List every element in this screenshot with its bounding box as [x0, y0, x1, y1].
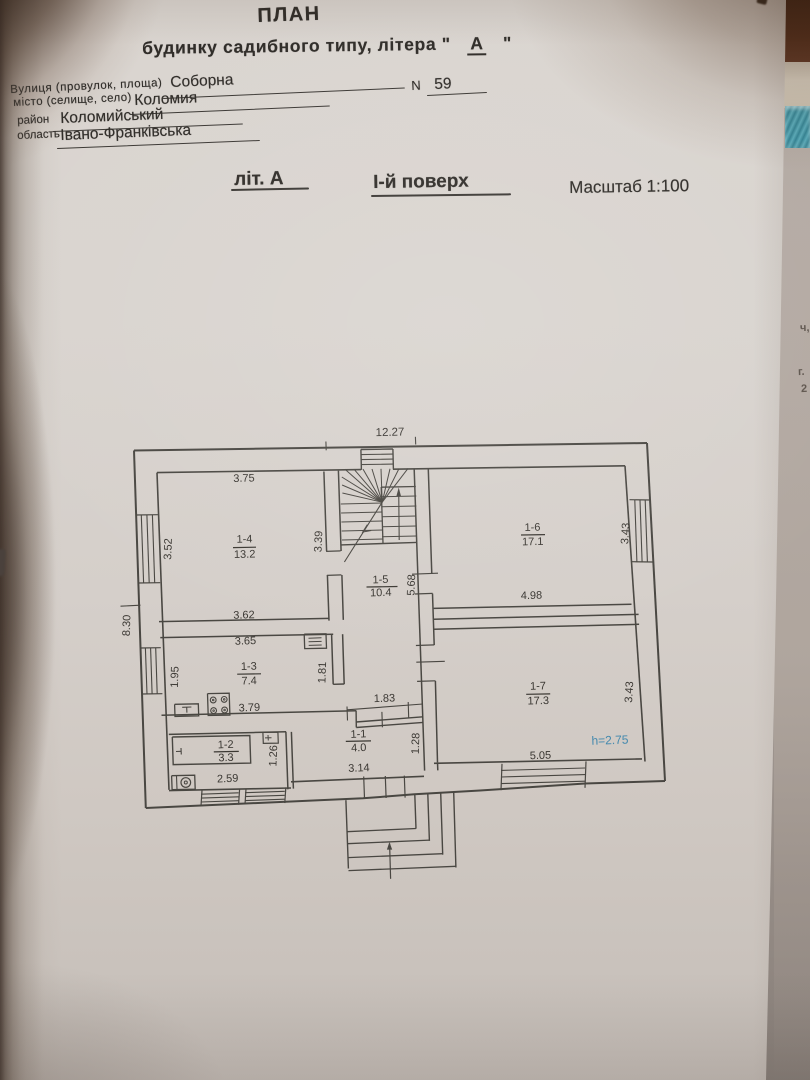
svg-text:3.65: 3.65: [235, 635, 257, 648]
svg-text:12.27: 12.27: [375, 427, 404, 440]
svg-text:1-7: 1-7: [530, 680, 546, 692]
svg-text:3.79: 3.79: [238, 702, 260, 715]
svg-text:1.28: 1.28: [410, 733, 423, 755]
svg-text:5.05: 5.05: [530, 750, 552, 763]
svg-text:1-6: 1-6: [524, 522, 540, 534]
svg-text:1.81: 1.81: [316, 662, 329, 684]
svg-text:17.3: 17.3: [527, 695, 549, 708]
svg-text:17.1: 17.1: [522, 536, 544, 548]
svg-text:4.0: 4.0: [351, 742, 367, 755]
svg-text:1.83: 1.83: [374, 692, 396, 705]
svg-text:1-3: 1-3: [241, 661, 257, 673]
svg-text:1-5: 1-5: [372, 574, 388, 586]
svg-text:3.52: 3.52: [162, 538, 175, 560]
svg-text:8.30: 8.30: [121, 615, 134, 637]
svg-text:13.2: 13.2: [234, 549, 256, 562]
svg-text:3.62: 3.62: [233, 609, 255, 622]
svg-text:1-4: 1-4: [236, 533, 252, 545]
svg-text:1.26: 1.26: [267, 745, 280, 767]
svg-text:3.3: 3.3: [218, 752, 234, 765]
svg-text:2.59: 2.59: [217, 773, 239, 786]
svg-text:h=2.75: h=2.75: [591, 733, 629, 748]
svg-text:1-2: 1-2: [218, 739, 234, 752]
svg-text:3.14: 3.14: [348, 762, 370, 775]
svg-text:1-1: 1-1: [350, 728, 366, 741]
svg-text:7.4: 7.4: [241, 675, 257, 687]
svg-text:3.75: 3.75: [233, 472, 255, 484]
svg-text:4.98: 4.98: [521, 590, 543, 603]
svg-text:3.43: 3.43: [623, 681, 636, 703]
svg-text:3.43: 3.43: [619, 522, 632, 544]
svg-text:5.68: 5.68: [405, 574, 418, 596]
svg-text:1.95: 1.95: [169, 666, 182, 688]
svg-text:3.39: 3.39: [313, 531, 326, 553]
svg-text:10.4: 10.4: [370, 587, 392, 600]
